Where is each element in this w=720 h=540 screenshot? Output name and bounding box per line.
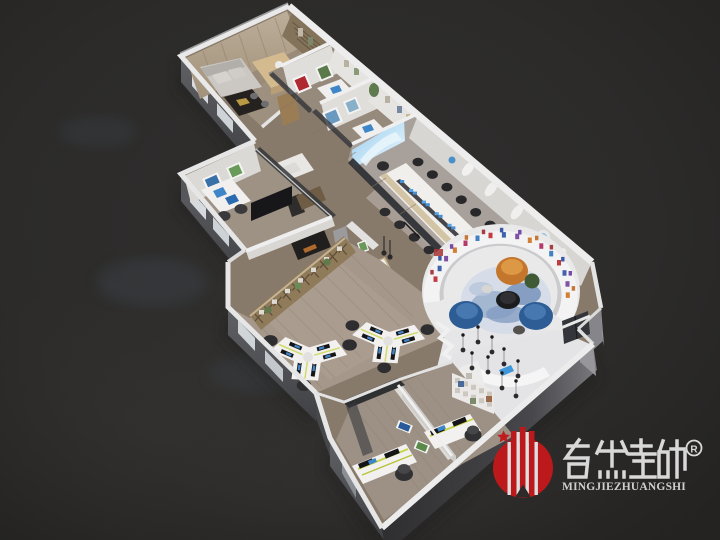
- svg-text:R: R: [690, 445, 698, 456]
- svg-text:MINGJIEZHUANGSHI: MINGJIEZHUANGSHI: [562, 481, 686, 493]
